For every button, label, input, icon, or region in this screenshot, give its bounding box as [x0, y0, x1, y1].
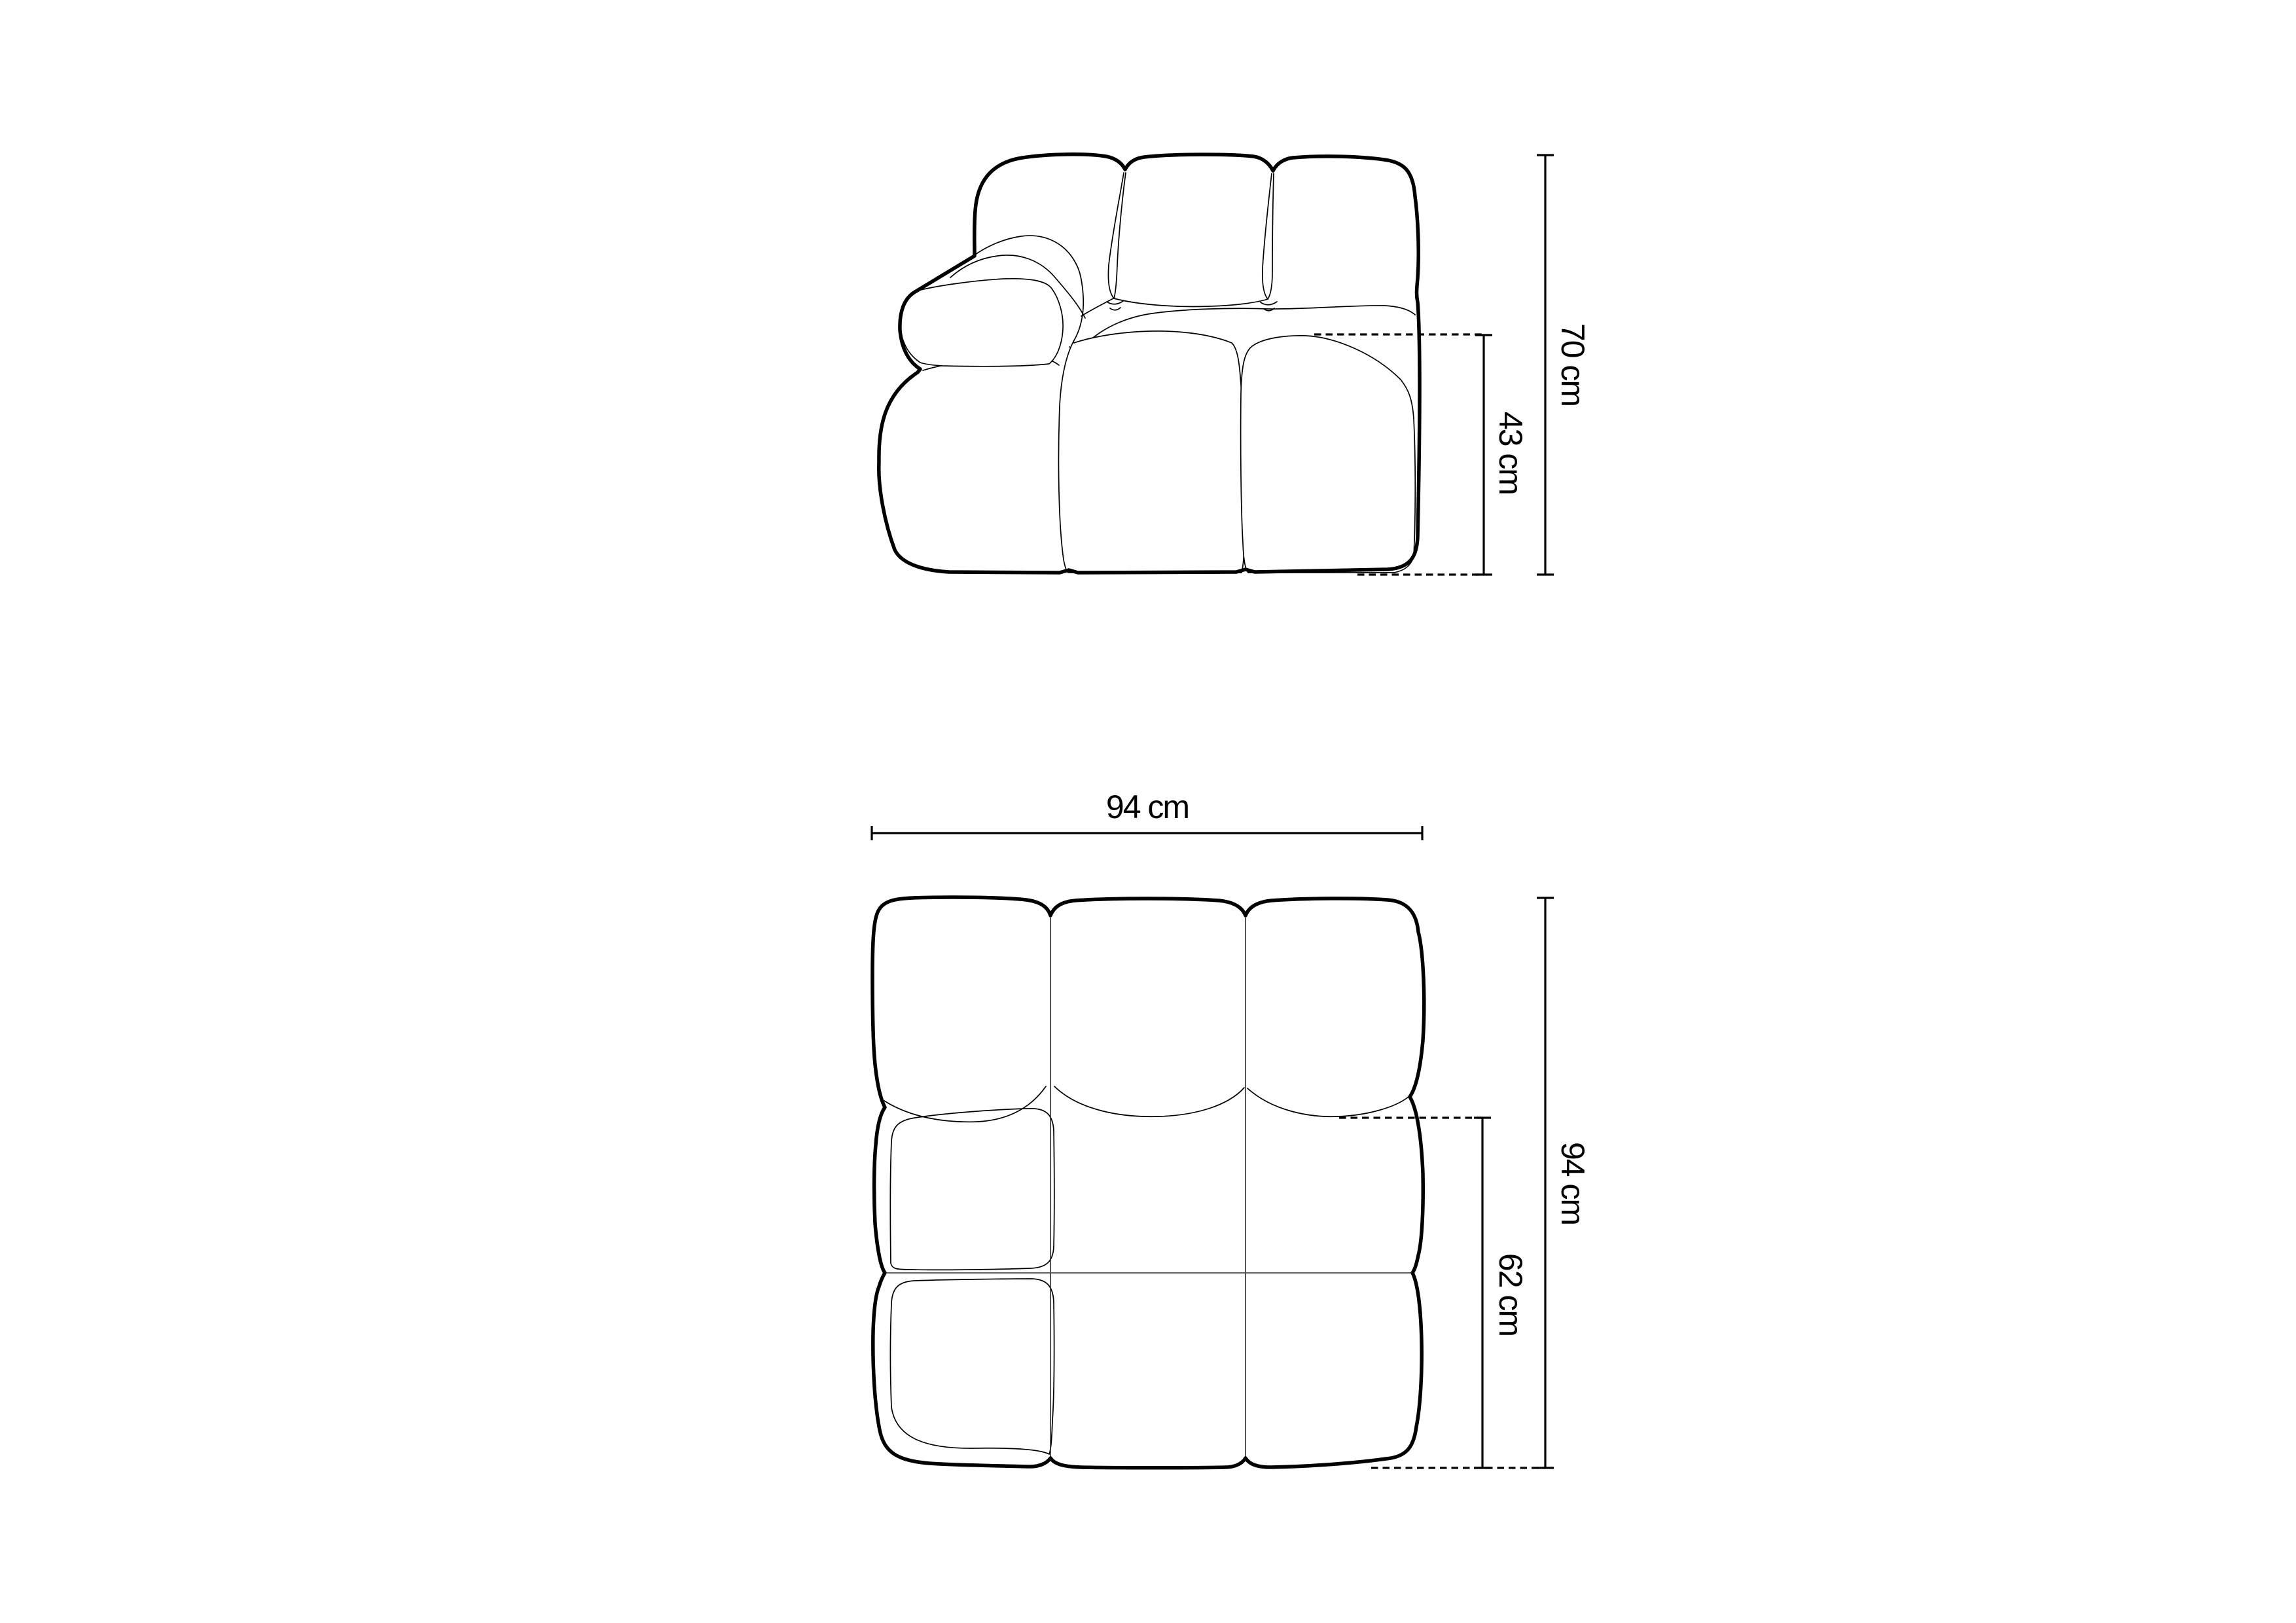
svg-text:94 cm: 94 cm: [1106, 789, 1189, 825]
svg-text:62 cm: 62 cm: [1492, 1253, 1529, 1336]
svg-text:70 cm: 70 cm: [1554, 323, 1591, 406]
svg-text:43 cm: 43 cm: [1492, 412, 1529, 494]
svg-text:94 cm: 94 cm: [1554, 1142, 1591, 1224]
